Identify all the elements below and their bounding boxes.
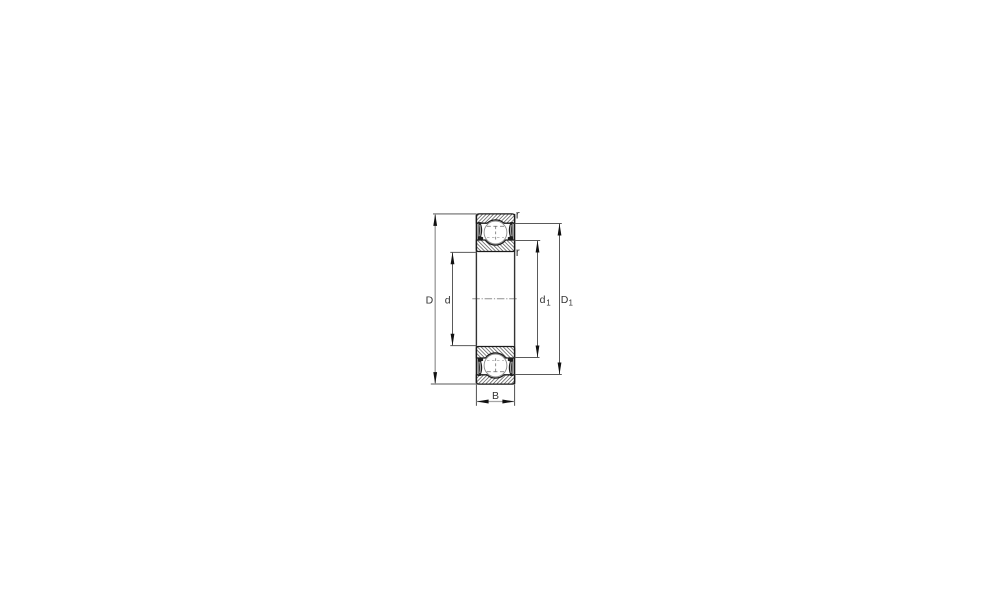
svg-text:r: r [516, 207, 520, 221]
svg-text:1: 1 [569, 299, 574, 308]
svg-text:D: D [561, 294, 569, 306]
svg-text:r: r [516, 245, 520, 259]
svg-text:d: d [445, 294, 451, 306]
svg-text:B: B [492, 390, 499, 402]
svg-text:D: D [426, 294, 434, 306]
svg-text:d: d [540, 294, 546, 306]
svg-text:1: 1 [546, 299, 551, 308]
